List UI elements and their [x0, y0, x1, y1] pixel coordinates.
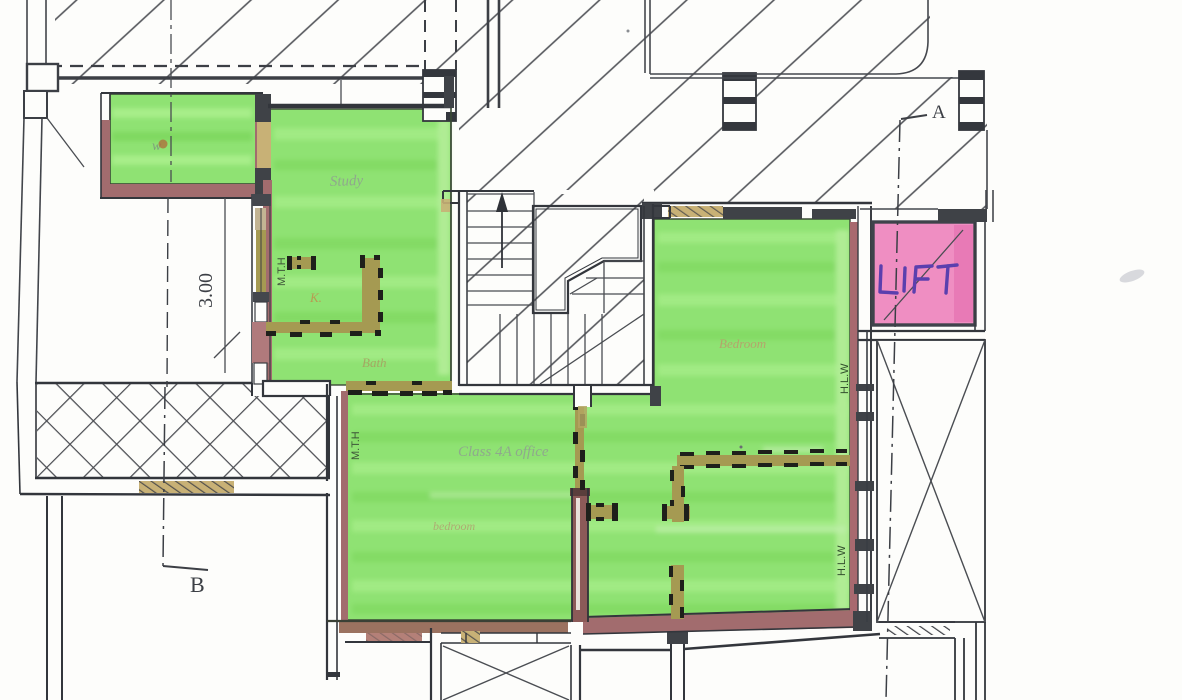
svg-text:H.L.W: H.L.W	[839, 363, 851, 394]
svg-text:3.00: 3.00	[195, 273, 217, 308]
svg-text:Bath: Bath	[362, 355, 387, 370]
svg-text:M.T.H: M.T.H	[350, 431, 362, 460]
svg-text:bedroom: bedroom	[433, 519, 476, 533]
svg-text:Study: Study	[330, 173, 364, 190]
svg-text:Class 4A office: Class 4A office	[458, 444, 549, 460]
svg-text:Bedroom: Bedroom	[719, 336, 766, 351]
svg-text:B: B	[190, 572, 205, 597]
svg-text:K.: K.	[309, 290, 322, 305]
svg-text:H.L.W: H.L.W	[836, 545, 848, 576]
svg-text:M.T.H: M.T.H	[276, 257, 288, 286]
svg-text:A: A	[932, 102, 946, 123]
